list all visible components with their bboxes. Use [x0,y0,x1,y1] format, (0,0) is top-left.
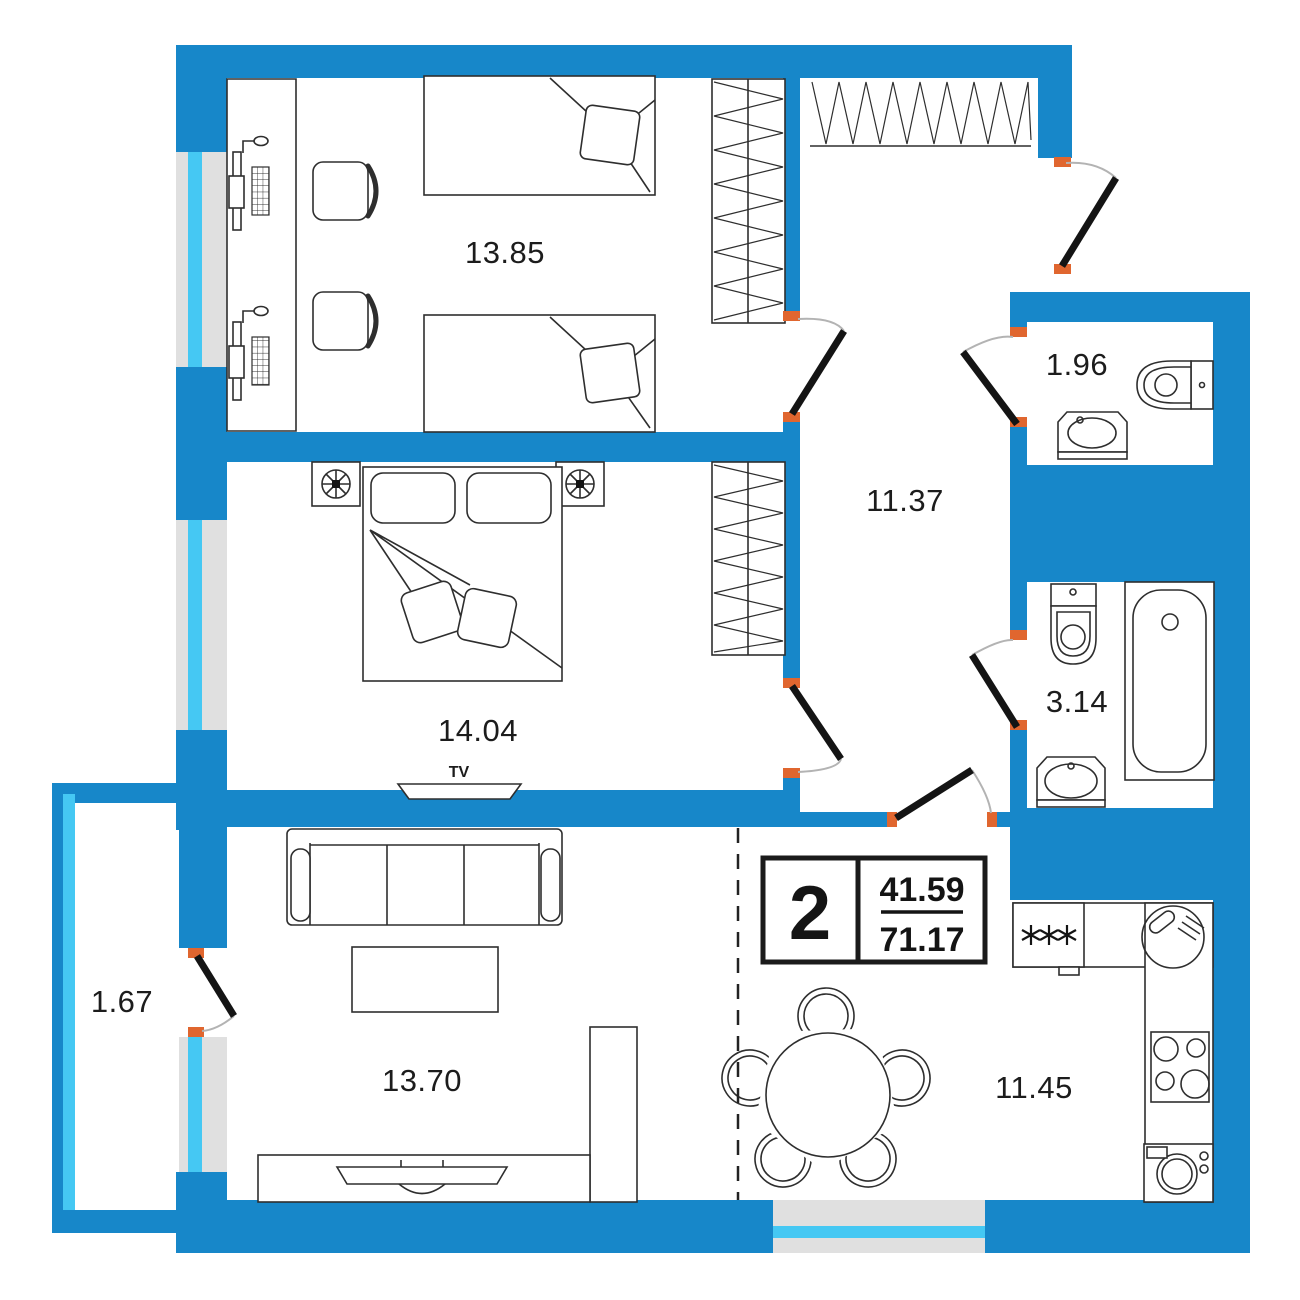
window-icon [176,520,227,730]
toilet-icon [1051,584,1096,664]
nightstand-lamp-icon [556,462,604,506]
wall-segment [176,1200,773,1253]
sink-icon [1037,757,1105,807]
floor-plan-page: 13.85 14.04 11.37 1.96 3.14 1.67 13.70 1… [0,0,1300,1300]
wall-segment [1213,292,1250,1253]
washing-machine-icon [1144,1144,1213,1202]
window-icon [179,1037,227,1172]
window-icon [773,1200,985,1253]
cabinet-icon [590,1027,637,1202]
double-bed-icon [363,467,562,681]
area-badge: 2 41.59 71.17 [763,858,985,962]
wall-segment [176,730,227,830]
living-room-furniture [258,829,637,1202]
wall-segment [783,422,800,462]
room-label-bedroom-1: 13.85 [465,235,545,270]
sink-icon [1058,412,1127,459]
cooktop-icon [1151,1032,1209,1102]
balcony-wall [52,1210,179,1233]
room-label-hallway: 11.37 [866,483,944,518]
nightstand-lamp-icon [312,462,360,506]
room-label-wc: 1.96 [1046,347,1108,382]
kitchen-furniture [1013,903,1213,1202]
wall-segment [1038,78,1072,158]
wall-segment [797,812,887,827]
wall-segment [176,432,800,462]
room-label-living-room: 13.70 [382,1063,462,1098]
window-icon [176,152,227,367]
badge-total-area: 71.17 [879,921,964,959]
balcony-door-icon [188,948,234,1037]
tv-stand-icon [258,1155,590,1202]
room-label-balcony: 1.67 [91,984,153,1019]
fridge-icon [1013,903,1084,975]
wall-segment [1010,427,1027,630]
door-icon [972,630,1027,730]
coat-rack-icon [810,82,1031,146]
balcony-glazing [63,794,75,1210]
door-icon [963,327,1027,427]
wall-segment [176,45,1072,78]
office-chair-icon [313,292,376,350]
hallway-furniture [810,82,1031,146]
door-icon [783,311,844,422]
wall-segment [985,1200,1250,1253]
entry-door-icon [1054,157,1116,274]
office-chair-icon [313,162,376,220]
bedroom2-furniture [312,462,785,799]
single-bed-icon [424,76,655,195]
dining-set [717,987,936,1198]
room-label-bedroom-2: 14.04 [438,713,518,748]
room-label-kitchen: 11.45 [995,1070,1073,1105]
floor-plan-drawing: 13.85 14.04 11.37 1.96 3.14 1.67 13.70 1… [0,0,1300,1300]
coffee-table-icon [352,947,498,1012]
room-label-bathroom: 3.14 [1046,684,1108,719]
wall-segment [176,45,227,152]
badge-rooms-count: 2 [789,871,831,956]
sofa-icon [287,829,562,925]
door-icon [783,678,841,778]
wall-segment [179,830,227,948]
door-icon [887,770,997,827]
tv-icon [398,784,521,799]
tv-label: TV [449,764,470,781]
wardrobe-icon [712,79,785,323]
badge-living-area: 41.59 [879,871,964,909]
dining-table-icon [766,1033,890,1157]
toilet-icon [1137,361,1213,409]
single-bed-icon [424,315,655,432]
bathtub-icon [1125,582,1214,780]
wardrobe-icon [712,462,785,655]
balcony-wall [52,783,63,1233]
